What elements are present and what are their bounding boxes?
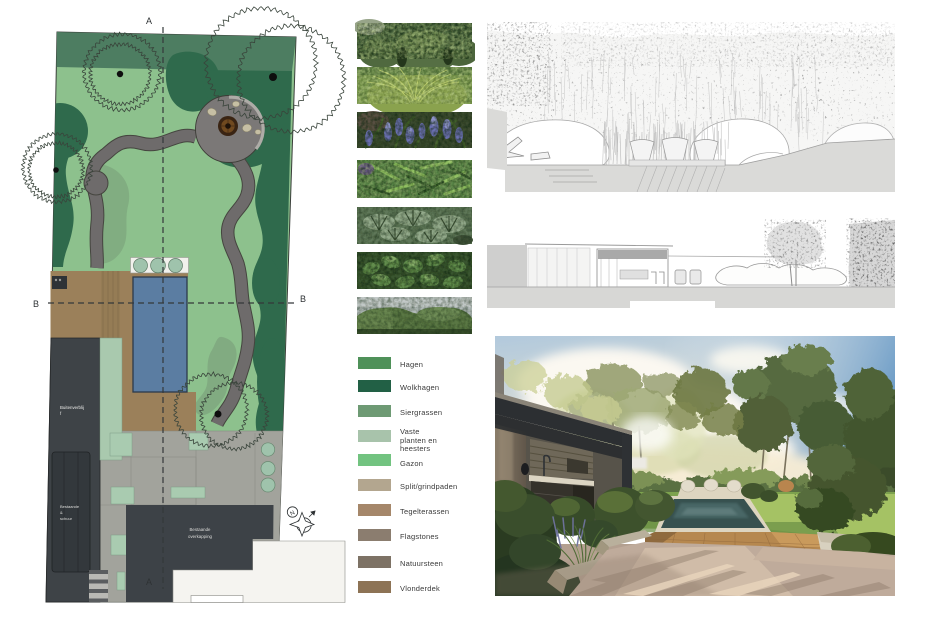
svg-text:&: & [60,510,63,515]
svg-text:Bestaande: Bestaande [60,504,80,509]
svg-text:Bestaande: Bestaande [190,527,212,532]
svg-text:B: B [300,294,306,304]
svg-text:A: A [146,577,152,587]
svg-text:schuur: schuur [60,516,73,521]
svg-text:overkapping: overkapping [188,534,212,539]
svg-text:A: A [146,16,152,26]
svg-text:B: B [33,299,39,309]
svg-text:Buitenverblij: Buitenverblij [60,405,84,410]
